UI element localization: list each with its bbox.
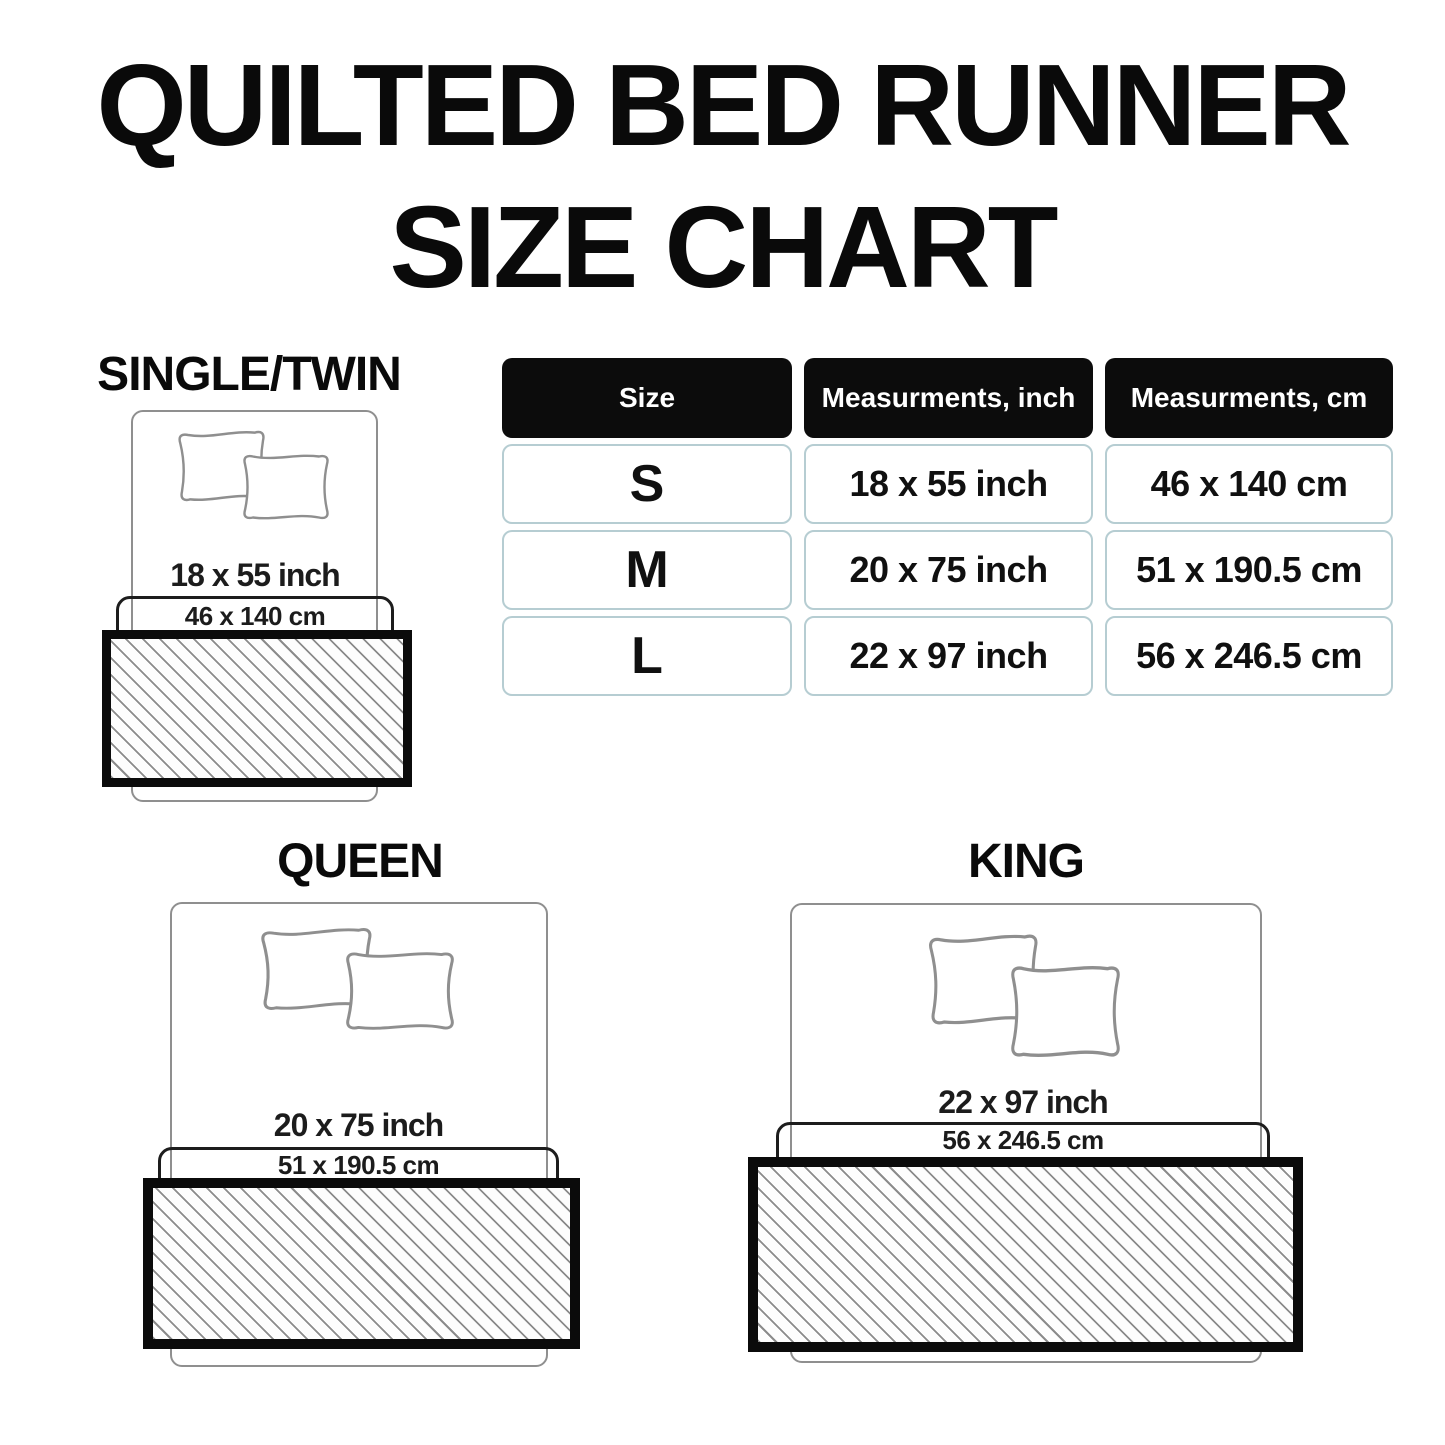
- diagram-label-single-twin: SINGLE/TWIN: [31, 349, 467, 401]
- runner-size-cm-king: 56 x 246.5 cm: [776, 1125, 1270, 1156]
- bed-runner-hatched-single: [102, 630, 412, 787]
- bed-runner-hatched-king: [748, 1157, 1303, 1352]
- diagram-label-king: KING: [808, 836, 1244, 888]
- pillow-front-icon: [236, 451, 336, 523]
- runner-size-inch-queen: 20 x 75 inch: [158, 1107, 559, 1144]
- bed-runner-hatched-queen: [143, 1178, 580, 1349]
- table-cell-inch-m: 20 x 75 inch: [804, 530, 1093, 610]
- table-cell-cm-l: 56 x 246.5 cm: [1105, 616, 1393, 696]
- table-cell-inch-l: 22 x 97 inch: [804, 616, 1093, 696]
- table-header-inch: Measurments, inch: [804, 358, 1093, 438]
- table-header-cm: Measurments, cm: [1105, 358, 1393, 438]
- table-cell-size-m: M: [502, 530, 792, 610]
- size-chart-infographic: QUILTED BED RUNNER SIZE CHART SINGLE/TWI…: [0, 0, 1445, 1445]
- table-cell-size-s: S: [502, 444, 792, 524]
- pillow-front-icon: [337, 948, 463, 1034]
- table-cell-size-l: L: [502, 616, 792, 696]
- table-header-size: Size: [502, 358, 792, 438]
- page-title-line-2: SIZE CHART: [0, 176, 1445, 318]
- runner-size-cm-queen: 51 x 190.5 cm: [158, 1150, 559, 1181]
- size-table: Size Measurments, inch Measurments, cm S…: [502, 358, 1393, 696]
- page-title-line-1: QUILTED BED RUNNER: [0, 34, 1445, 176]
- table-cell-cm-m: 51 x 190.5 cm: [1105, 530, 1393, 610]
- table-cell-cm-s: 46 x 140 cm: [1105, 444, 1393, 524]
- table-cell-inch-s: 18 x 55 inch: [804, 444, 1093, 524]
- diagram-label-queen: QUEEN: [142, 836, 578, 888]
- runner-size-inch-single: 18 x 55 inch: [116, 557, 394, 594]
- runner-size-cm-single: 46 x 140 cm: [116, 601, 394, 632]
- pillow-front-icon: [1002, 961, 1129, 1062]
- runner-size-inch-king: 22 x 97 inch: [776, 1084, 1270, 1121]
- page-title: QUILTED BED RUNNER SIZE CHART: [0, 34, 1445, 318]
